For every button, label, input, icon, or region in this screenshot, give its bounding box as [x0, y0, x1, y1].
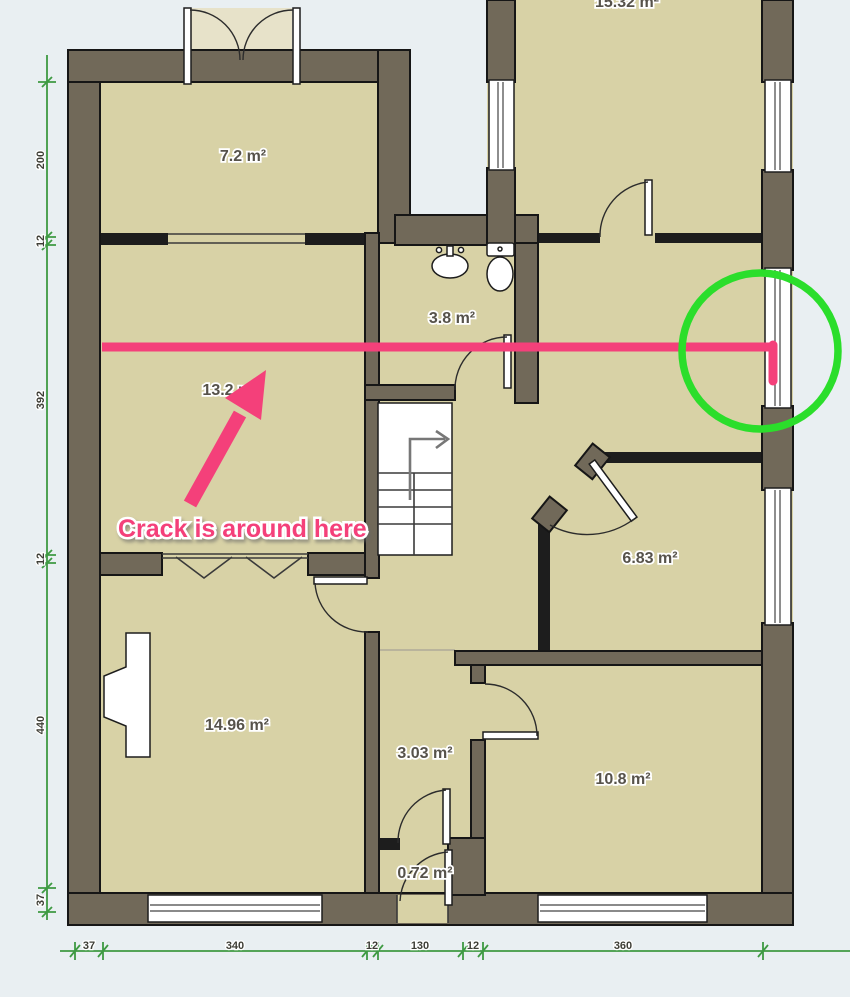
door-leaf — [645, 180, 652, 235]
wall — [100, 553, 162, 575]
window-circled — [765, 268, 791, 408]
sink-icon — [432, 254, 468, 278]
room-label-7-2: 7.2 m² — [220, 148, 266, 165]
dim-label: 12 — [467, 940, 479, 952]
wall — [471, 665, 485, 683]
toilet-button — [498, 247, 502, 251]
window — [489, 80, 514, 170]
room-label-10-8: 10.8 m² — [595, 771, 650, 788]
dim-label: 12 — [35, 235, 47, 247]
door-leaf — [483, 732, 538, 739]
wall-spine — [365, 632, 379, 893]
window — [148, 895, 322, 922]
sink-tap — [447, 246, 453, 256]
dim-label: 12 — [35, 553, 47, 565]
crack-annotation-text[interactable]: Crack is around here — [118, 515, 367, 543]
door-leaf — [314, 577, 367, 584]
wall — [655, 233, 762, 243]
dim-label: 37 — [83, 940, 95, 952]
floor-plan-drawing: 200 12 392 12 440 37 37 340 12 130 12 36… — [0, 0, 850, 997]
dim-label: 360 — [614, 940, 632, 952]
dim-label: 12 — [366, 940, 378, 952]
stairs-outline — [378, 403, 452, 555]
wall-left — [68, 50, 100, 925]
wall-right — [762, 170, 793, 270]
dimension-ruler-bottom: 37 340 12 130 12 360 — [60, 940, 850, 960]
wall — [308, 553, 368, 575]
dim-label: 392 — [35, 391, 47, 409]
wall — [487, 168, 515, 245]
entrance-door-leaf — [293, 8, 300, 84]
room-label-0-72: 0.72 m² — [397, 865, 452, 882]
sink-knob — [458, 247, 463, 252]
wall — [515, 243, 538, 403]
wall — [597, 452, 762, 463]
window — [538, 895, 707, 922]
dim-label: 37 — [35, 894, 47, 906]
wall — [487, 0, 515, 82]
dim-label: 440 — [35, 716, 47, 734]
entrance-door-leaf — [184, 8, 191, 84]
entrance-threshold-outer — [191, 8, 292, 52]
room-label-15-32: 15.32 m² — [595, 0, 659, 11]
back-door-opening — [397, 895, 448, 923]
stairs — [378, 403, 452, 555]
wall — [365, 385, 455, 400]
floor-plan: 200 12 392 12 440 37 37 340 12 130 12 36… — [0, 0, 850, 997]
window — [765, 488, 791, 625]
wall — [538, 521, 550, 651]
wall-spine — [365, 233, 379, 578]
wall-right — [762, 406, 793, 490]
door-leaf — [443, 789, 450, 844]
dim-label: 340 — [226, 940, 244, 952]
room-label-3-8: 3.8 m² — [429, 310, 475, 327]
wall-top — [68, 50, 410, 82]
wall — [395, 215, 538, 245]
sink-knob — [436, 247, 441, 252]
toilet-icon — [487, 257, 513, 291]
wall-right — [762, 0, 793, 82]
room-label-14-96: 14.96 m² — [205, 717, 269, 734]
wall — [378, 838, 400, 850]
wall — [448, 838, 485, 895]
wall — [455, 651, 762, 665]
wall-right — [762, 623, 793, 895]
room-label-6-83: 6.83 m² — [622, 550, 677, 567]
window — [765, 80, 791, 172]
wall — [100, 233, 168, 245]
dimension-ruler-left: 200 12 392 12 440 37 — [35, 55, 56, 920]
dim-label: 130 — [411, 940, 429, 952]
dim-label: 200 — [35, 151, 47, 169]
room-label-3-03: 3.03 m² — [397, 745, 452, 762]
